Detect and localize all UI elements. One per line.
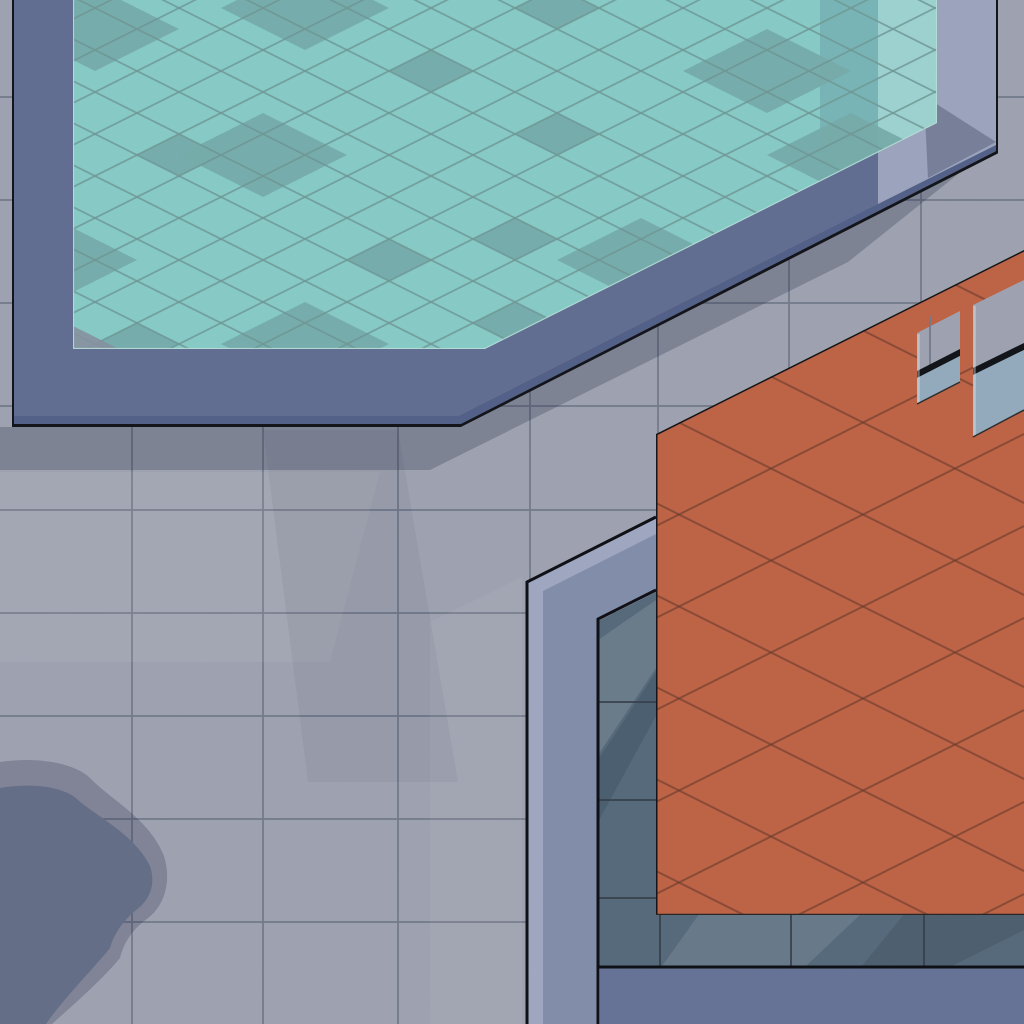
isometric-scene-canvas <box>0 0 1024 1024</box>
scene-illustration <box>0 0 1024 1024</box>
film-grain <box>0 0 1024 1024</box>
scene-root <box>0 0 1024 1024</box>
